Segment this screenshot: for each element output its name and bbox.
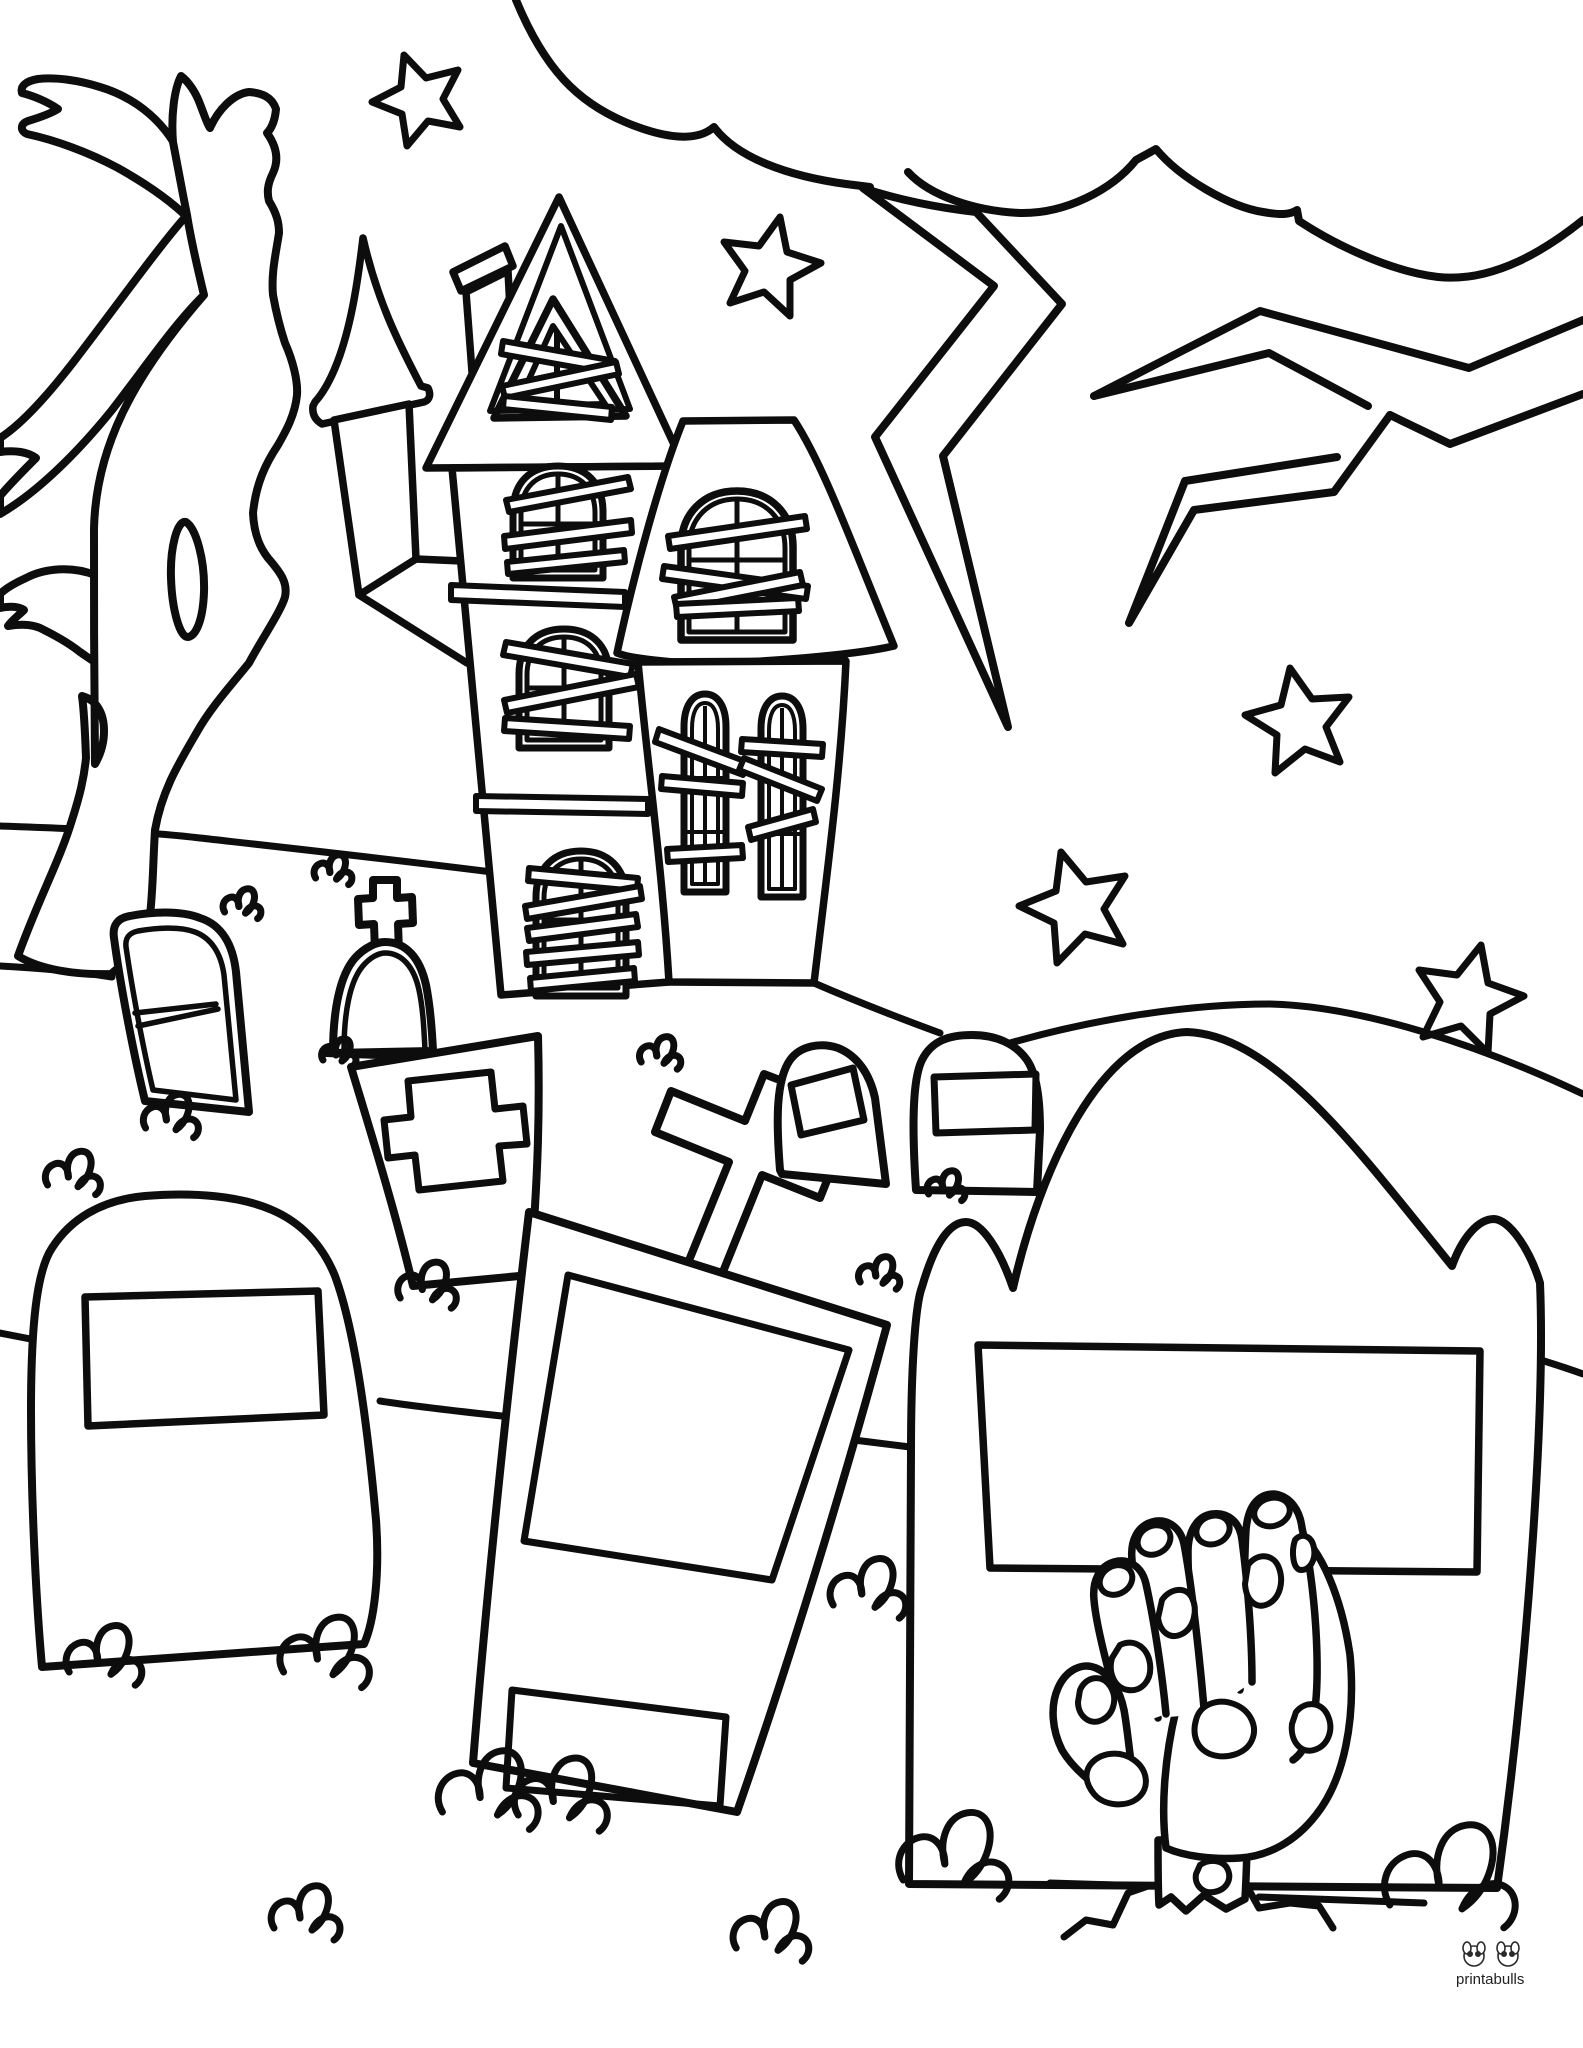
svg-text:printabulls: printabulls: [1456, 1971, 1524, 1988]
